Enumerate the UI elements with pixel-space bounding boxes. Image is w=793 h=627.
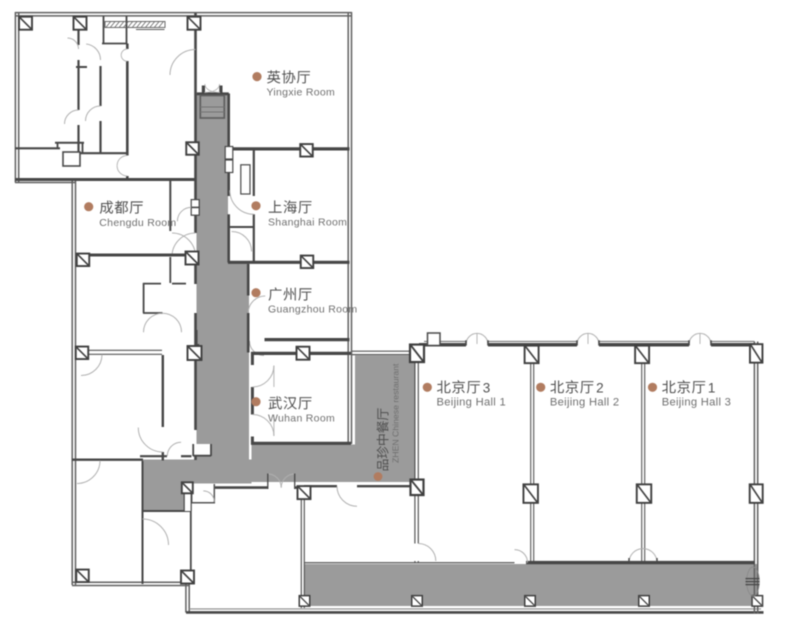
svg-text:Chengdu Room: Chengdu Room <box>99 217 176 229</box>
svg-text:Beijing Hall 2: Beijing Hall 2 <box>550 396 620 408</box>
svg-text:2: 2 <box>596 380 604 395</box>
svg-text:1: 1 <box>708 380 716 395</box>
svg-text:Guangzhou Room: Guangzhou Room <box>268 303 357 315</box>
svg-text:ZHEN Chinese restaurant: ZHEN Chinese restaurant <box>390 363 400 463</box>
svg-text:Shanghai Room: Shanghai Room <box>268 217 347 229</box>
svg-text:Yingxie Room: Yingxie Room <box>267 86 336 98</box>
svg-text:Beijing Hall 1: Beijing Hall 1 <box>437 396 507 408</box>
svg-text:3: 3 <box>483 380 491 395</box>
svg-text:Beijing Hall 3: Beijing Hall 3 <box>662 396 732 408</box>
svg-text:Wuhan Room: Wuhan Room <box>268 412 335 424</box>
